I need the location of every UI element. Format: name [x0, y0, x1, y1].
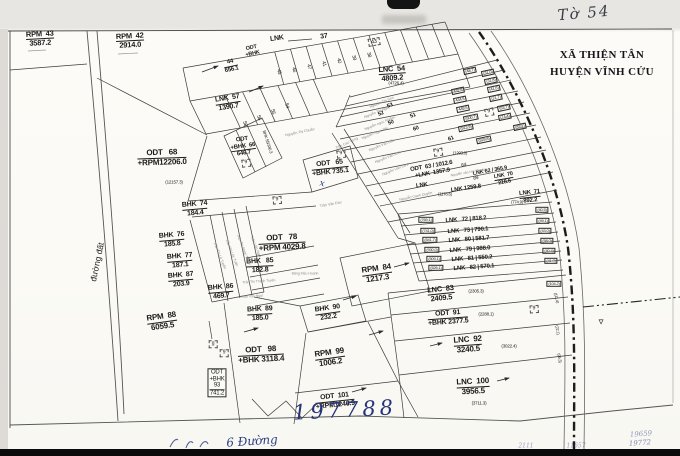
parcel-odt-91: ODT 91+BHK 2377.5	[427, 308, 468, 327]
survey-value: 432.5	[451, 87, 465, 96]
survey-value: (829.8)	[476, 135, 492, 144]
parcel-rpm-42: RPM 422914.0	[116, 32, 145, 51]
parcel-lnc-83: LNC 832409.5	[427, 284, 455, 304]
strip-number: 38	[365, 52, 372, 58]
handwritten-bottom-left: 6 Đường	[226, 432, 278, 450]
survey-value: (509.1)	[426, 256, 441, 262]
handwritten-x-mark: x	[318, 179, 325, 190]
owner-name: Nguyễn Thị Chuẩn	[285, 128, 315, 138]
label-area2: (2288.1)	[478, 313, 493, 318]
handwritten-faint: 2111	[518, 443, 533, 450]
owner-name: Đặng Kiều Hoanh	[292, 272, 319, 275]
owner-name: Trần Thị Lệ Tuyền	[212, 242, 226, 270]
label-area2: (12157.3)	[165, 181, 182, 186]
owner-name: Trần Văn Ngọt	[241, 295, 263, 300]
strip-number: 51	[409, 112, 416, 120]
boundary-triangle: ▽	[599, 320, 603, 327]
label-area2: (4726.4)	[388, 82, 403, 87]
survey-value: (541.7)	[422, 237, 437, 243]
survey-value: (49.1)	[536, 218, 549, 224]
strip-number: 56	[255, 115, 262, 121]
parcel-odt-98: ODT 98+BHK 3118.4	[238, 345, 285, 366]
survey-value: 434.5	[453, 96, 467, 105]
survey-value: (43.0)	[538, 228, 551, 234]
survey-value: (40.5)	[535, 207, 548, 213]
parcel-bhk-87: BHK 87203.9	[168, 271, 195, 290]
parcel-odt-bhk-93: ODT+BHK93741.2	[207, 368, 226, 397]
owner-name: Trần Cao Vòng	[335, 137, 358, 151]
parcel-odt-78: ODT 78+RPM 4029.8	[258, 232, 306, 253]
parcel-lnk-81: LNK 81 | 550.2	[451, 254, 492, 263]
parcel-bhk-74: BHK 74184.4	[182, 200, 209, 219]
label-bhk-55: BHK 55/330.3	[261, 130, 273, 154]
survey-mark: 9	[484, 107, 494, 116]
parcel-lnc-92: LNC 923240.5	[453, 335, 483, 356]
parcel-odt-63: ODT 63 / 1012.6+LNK 1357.9	[410, 160, 454, 180]
parcel-rpm-99: RPM 991006.2	[314, 347, 346, 370]
label-area2: (2305.3)	[468, 290, 483, 295]
road-length: (96.3)	[556, 353, 562, 363]
label-lnk: LNK	[416, 182, 429, 190]
survey-value: (63.7)	[497, 103, 511, 112]
survey-value: (769.1)	[418, 217, 433, 223]
strip-number: 46	[290, 67, 297, 73]
road-length: (111.4)	[553, 292, 560, 303]
strip-number: 40	[335, 58, 342, 64]
label-area2: (1178.6)	[438, 193, 452, 198]
parcel-bhk-76: BHK 76185.8	[159, 231, 186, 250]
parcel-bhk-90: BHK 90232.2	[314, 303, 341, 323]
handwritten-faint: 11657	[566, 443, 585, 450]
survey-value: (104.2)	[546, 281, 561, 287]
label-area2: (774.9)	[511, 201, 523, 206]
survey-mark: 9	[241, 159, 251, 168]
survey-mark: 9	[272, 196, 281, 204]
label-64: 64	[461, 163, 467, 169]
survey-value: (41.6)	[487, 84, 501, 93]
owner-name: Trần Thị Thanh Tuyền	[242, 279, 275, 285]
survey-mark: 9	[336, 150, 346, 159]
survey-value: (21.7)	[489, 93, 503, 102]
parcel-rpm-84: RPM 841217.3	[361, 263, 393, 286]
parcel-lnk-1259: LNK 1259.8	[451, 184, 482, 195]
parcel-lnk-80: LNK 80 | 581.7	[448, 235, 489, 244]
scanned-cadastral-map: RPM 433587.2RPM 422914.0LNK3743ODT+BHK44…	[0, 0, 680, 456]
parcel-bhk-89: BHK 89185.0	[247, 305, 273, 323]
strip-number: 61	[447, 135, 454, 143]
survey-value: (41.0)	[544, 258, 557, 264]
survey-mark: 9	[433, 148, 443, 157]
parcel-bhk-86: BHK 86469.7	[208, 283, 235, 302]
label-lnk-row-header: LNK	[270, 34, 285, 44]
owner-name: Nguyễn Văn Dần	[369, 139, 396, 153]
survey-value: (741.0)	[420, 228, 435, 234]
parcel-lnk-57: LNK 571390.7	[215, 93, 242, 113]
survey-value: (930.0)	[424, 247, 439, 253]
sheet-number-handwritten: Tờ 54	[557, 2, 611, 25]
survey-value: (74.4)	[498, 112, 512, 121]
owner-name: Trần Văn Đức	[320, 201, 343, 208]
parcel-odt-bhk-65: ODT 65+BHK 735.1	[311, 158, 349, 178]
road-length: (22.1)	[554, 325, 560, 335]
survey-value: (526.1)	[428, 265, 443, 271]
parcel-lnk-73: LNK 73 | 790.1	[447, 226, 488, 235]
label-89: 89	[473, 176, 479, 182]
commune-title-block: XÃ THIỆN TÂN HUYỆN VĨNH CỬU	[548, 47, 656, 80]
label-area2: (1293.0)	[453, 152, 467, 157]
strip-number: 55	[269, 109, 276, 115]
survey-value: (48.7)	[463, 66, 477, 75]
label-area2: (3711.3)	[472, 402, 487, 407]
strip-number: 39	[350, 55, 357, 61]
survey-value: (913.9)	[458, 123, 474, 132]
survey-mark: g	[209, 340, 218, 348]
parcel-bhk-77: BHK 77187.1	[167, 252, 194, 271]
parcel-rpm-88: RPM 886059.5	[146, 311, 178, 334]
survey-value: (600.7)	[463, 113, 479, 122]
district-name: HUYỆN VĨNH CỬU	[548, 64, 656, 81]
parcel-lnk-72: LNK 72 | 818.2	[445, 215, 486, 224]
parcel-lnk-79: LNK 79 | 988.0	[449, 245, 490, 254]
parcel-lnc-100: LNC 1003956.5	[456, 377, 490, 397]
strip-number: 47	[305, 64, 312, 70]
strip-number: 45	[275, 69, 282, 75]
owner-name: Nguyễn Văn Lãnh	[382, 163, 410, 177]
survey-value: 449.5	[456, 105, 470, 114]
owner-name: Trần Phi Lộc Tuấn	[224, 239, 238, 267]
parcel-lnk-82: LNK 82 | 570.1	[453, 263, 494, 272]
handwritten-faint: 19772	[629, 438, 652, 448]
label-37: 37	[320, 33, 328, 42]
owner-name: Nguyễn Canh Quyền	[399, 192, 433, 202]
parcel-odt-bhk-small: ODT+BHK	[244, 44, 261, 59]
label-43-box: 43	[368, 37, 381, 47]
parcel-44: 44656.1	[223, 58, 240, 75]
strip-number: 58	[241, 121, 248, 127]
survey-value: (58.0)	[540, 238, 553, 244]
survey-mark: 9	[529, 305, 538, 313]
strip-number: 60	[412, 125, 419, 133]
handwritten-big-number: 197788	[292, 395, 397, 424]
parcel-rpm-43: RPM 433587.2	[26, 30, 55, 49]
survey-mark: 9	[220, 349, 229, 357]
survey-value: (40.4)	[542, 248, 555, 254]
owner-name: Nguyễn Văn Ảnh	[375, 151, 402, 165]
strip-number: 41	[320, 61, 327, 67]
strip-number: 54	[283, 103, 290, 109]
label-area2: (3022.4)	[501, 345, 516, 350]
commune-name: XÃ THIỆN TÂN	[548, 47, 656, 64]
parcel-lnk-70: LNK 70218.6	[493, 171, 514, 187]
survey-value: (83.1)	[513, 122, 527, 131]
parcel-odt-68: ODT 68+RPM12206.0	[137, 148, 187, 168]
parcel-odt-bhk-66: ODT+BHK 66646.7	[229, 135, 257, 159]
